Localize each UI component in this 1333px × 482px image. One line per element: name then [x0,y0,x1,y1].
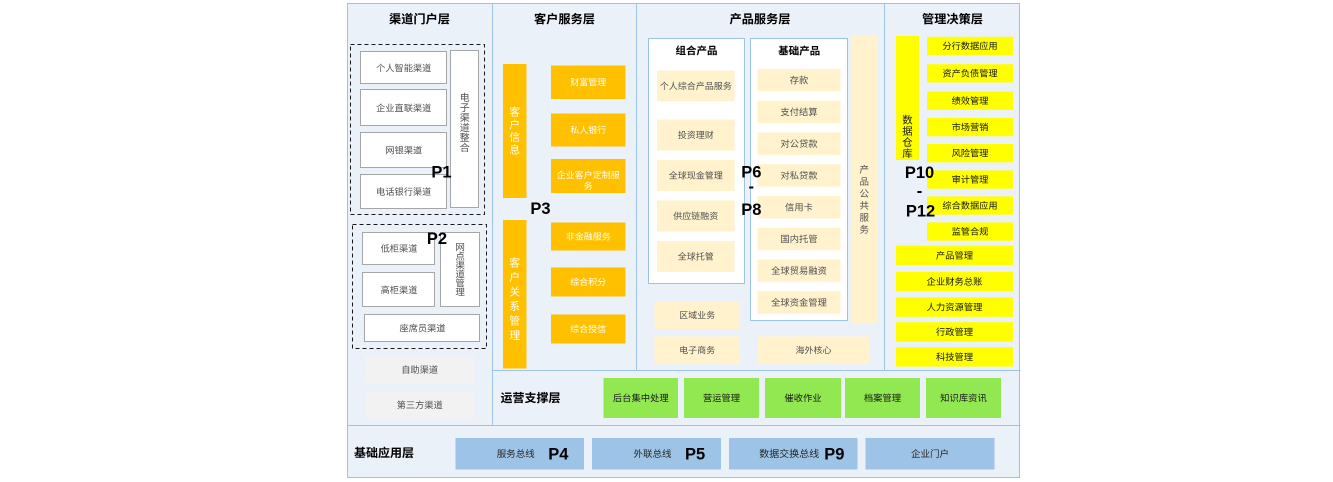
svg-text:P1: P1 [431,163,451,181]
svg-text:P2: P2 [427,230,447,248]
svg-text:P4: P4 [548,446,569,464]
svg-text:-: - [917,182,923,200]
svg-text:P12: P12 [906,202,935,220]
svg-text:-: - [749,178,755,196]
svg-text:P10: P10 [905,164,934,182]
svg-text:P3: P3 [530,200,550,218]
svg-text:P8: P8 [741,201,761,219]
svg-text:P5: P5 [685,446,705,464]
svg-text:P9: P9 [824,446,844,464]
